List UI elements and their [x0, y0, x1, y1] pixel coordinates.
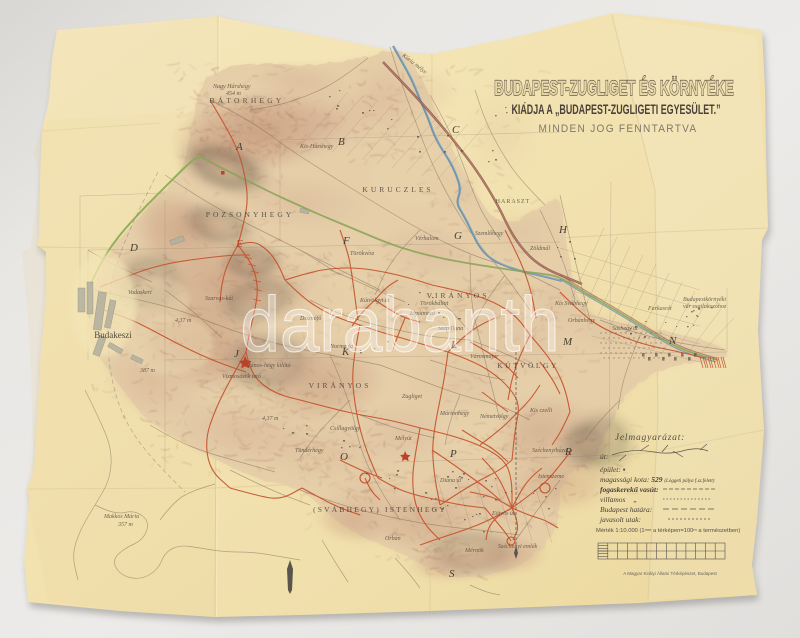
svg-text:Mérnök: Mérnök [464, 548, 484, 554]
svg-text:Zöldmál: Zöldmál [530, 246, 550, 252]
svg-text:Diana út: Diana út [439, 478, 462, 484]
svg-text:Orbán: Orbán [385, 536, 401, 542]
svg-text:Németvölgy: Németvölgy [479, 414, 509, 420]
svg-text:VIRÁNYOS: VIRÁNYOS [309, 380, 372, 390]
svg-text:Sashegy út: Sashegy út [612, 326, 638, 332]
svg-text:Vízmosások tető: Vízmosások tető [222, 373, 262, 380]
svg-text:Budapestkörnyéki: Budapestkörnyéki [683, 297, 726, 303]
svg-text:E: E [235, 238, 243, 250]
svg-text:BUDAPEST-ZUGLIGET ÉS KÖRNYÉKE: BUDAPEST-ZUGLIGET ÉS KÖRNYÉKE [494, 75, 733, 100]
svg-text:Istenszeme: Istenszeme [537, 474, 564, 480]
svg-text:Szemlőhegy: Szemlőhegy [475, 230, 504, 237]
svg-text:Budakeszi: Budakeszi [94, 330, 132, 340]
svg-text:357 m: 357 m [117, 522, 134, 528]
svg-text:A: A [235, 141, 243, 153]
svg-text:Szarvas-kút: Szarvas-kút [205, 296, 233, 302]
svg-text:Farkasrét: Farkasrét [647, 306, 672, 312]
svg-text:Széchenyi emlék: Széchenyi emlék [498, 544, 537, 550]
svg-text:G: G [454, 230, 462, 242]
svg-text:vár csatlakozóhoz: vár csatlakozóhoz [683, 304, 727, 310]
svg-text:(SVÁBHEGY) ISTENHEGY: (SVÁBHEGY) ISTENHEGY [313, 504, 447, 514]
svg-text:387 m: 387 m [139, 368, 156, 374]
svg-text:Eötvös út: Eötvös út [491, 511, 515, 517]
svg-text:út:: út: [600, 452, 608, 461]
svg-text:A Magyar Királyi Állami Térkép: A Magyar Királyi Állami Térképészet, Bud… [623, 570, 717, 576]
svg-text:KURUCZLES: KURUCZLES [362, 185, 433, 194]
svg-text:D: D [129, 242, 138, 254]
svg-text:Mérték 1:10.000 (1mm a térképe: Mérték 1:10.000 (1mm a térképen=100m a t… [596, 527, 740, 534]
svg-text:Kis-Hárshegy: Kis-Hárshegy [299, 144, 334, 150]
svg-text:H: H [558, 224, 568, 236]
svg-text:M: M [562, 336, 573, 348]
svg-text:Kis czelli: Kis czelli [529, 408, 552, 414]
svg-text:O: O [340, 451, 348, 463]
svg-text:B: B [338, 136, 345, 148]
svg-text:F: F [342, 235, 350, 247]
svg-text:S: S [449, 568, 455, 580]
svg-text:Csillagvölgy: Csillagvölgy [330, 426, 361, 432]
svg-text:Makkos Mária: Makkos Mária [103, 514, 139, 520]
svg-text:Orbánhegy: Orbánhegy [568, 318, 595, 324]
svg-text:Nagy Hárshegy: Nagy Hárshegy [212, 84, 251, 90]
svg-text:fogaskerekű vasút:: fogaskerekű vasút: [600, 485, 659, 494]
svg-text:darabanth: darabanth [241, 280, 560, 368]
svg-text:Tündérhegy: Tündérhegy [295, 448, 324, 454]
svg-text:HARASZT: HARASZT [496, 199, 531, 205]
svg-text:KIADJA A „BUDAPEST-ZUGLIGETI E: KIADJA A „BUDAPEST-ZUGLIGETI EGYESÜLET.” [511, 102, 720, 117]
svg-text:épület: ▪: épület: ▪ [600, 465, 626, 474]
svg-text:4,37 m: 4,37 m [175, 317, 192, 324]
svg-text:Vadaskert: Vadaskert [128, 290, 152, 296]
svg-text:BÁTORHEGY: BÁTORHEGY [210, 95, 285, 105]
svg-text:Széchenyiháza: Széchenyiháza [532, 448, 567, 454]
svg-text:Budapest határa:: Budapest határa: [600, 505, 652, 514]
svg-text:Vérhalom: Vérhalom [415, 236, 439, 242]
svg-text:Törökvész: Törökvész [350, 251, 375, 257]
svg-text:454 m: 454 m [226, 90, 242, 97]
svg-text:javasolt utak:: javasolt utak: [599, 515, 641, 524]
svg-text:C: C [452, 124, 460, 136]
svg-text:Mártonhegy: Mártonhegy [439, 411, 470, 417]
svg-text:POZSONYHEGY: POZSONYHEGY [206, 210, 294, 219]
svg-text:MINDEN JOG FENNTARTVA: MINDEN JOG FENNTARTVA [539, 123, 698, 135]
svg-text:N: N [668, 335, 677, 347]
svg-text:Zugliget: Zugliget [402, 394, 422, 400]
svg-text:Jelmagyarázat:: Jelmagyarázat: [615, 433, 685, 443]
svg-text:4,37 m: 4,37 m [262, 415, 279, 422]
svg-text:P: P [449, 448, 457, 460]
svg-text:Mélyút: Mélyút [394, 436, 412, 442]
